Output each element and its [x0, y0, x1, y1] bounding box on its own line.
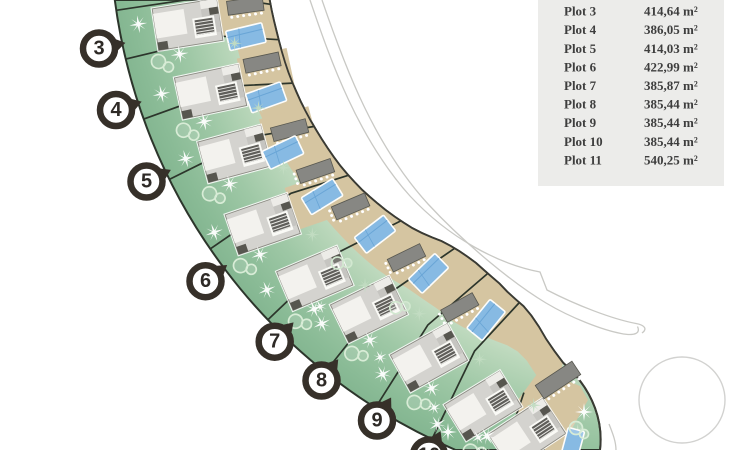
svg-text:7: 7 — [269, 331, 280, 353]
svg-text:414,64 m²: 414,64 m² — [644, 4, 698, 19]
svg-text:4: 4 — [110, 99, 122, 121]
svg-text:385,44 m²: 385,44 m² — [644, 115, 698, 130]
svg-text:385,87 m²: 385,87 m² — [644, 78, 698, 93]
svg-text:422,99 m²: 422,99 m² — [644, 59, 698, 74]
svg-text:5: 5 — [141, 171, 152, 193]
svg-text:414,03 m²: 414,03 m² — [644, 41, 698, 56]
svg-text:Plot 4: Plot 4 — [564, 22, 597, 37]
svg-text:385,44 m²: 385,44 m² — [644, 97, 698, 112]
svg-text:Plot 8: Plot 8 — [564, 97, 597, 112]
svg-text:540,25 m²: 540,25 m² — [644, 152, 698, 167]
svg-text:Plot 7: Plot 7 — [564, 78, 597, 93]
svg-text:Plot 9: Plot 9 — [564, 115, 597, 130]
svg-text:9: 9 — [371, 410, 382, 432]
svg-text:10: 10 — [418, 445, 440, 450]
svg-text:Plot 10: Plot 10 — [564, 134, 603, 149]
svg-text:Plot 5: Plot 5 — [564, 41, 597, 56]
svg-text:Plot 11: Plot 11 — [564, 152, 602, 167]
svg-text:8: 8 — [316, 370, 327, 392]
svg-text:386,05 m²: 386,05 m² — [644, 22, 698, 37]
svg-text:385,44 m²: 385,44 m² — [644, 134, 698, 149]
svg-text:Plot 3: Plot 3 — [564, 4, 597, 19]
svg-text:3: 3 — [93, 38, 104, 60]
svg-text:6: 6 — [200, 270, 211, 292]
svg-text:Plot 6: Plot 6 — [564, 59, 597, 74]
